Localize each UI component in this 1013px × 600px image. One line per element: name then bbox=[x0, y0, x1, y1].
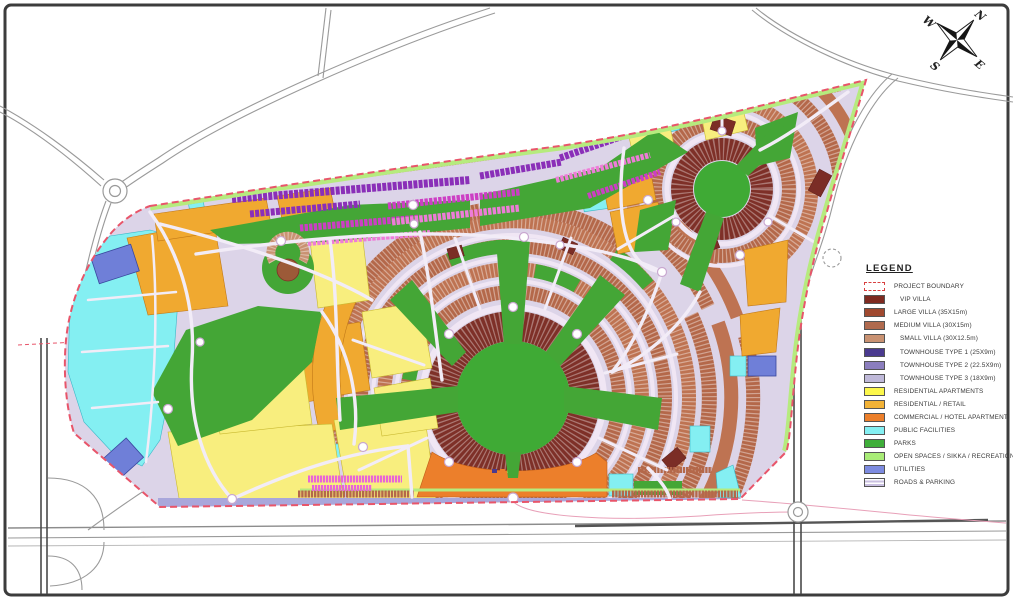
legend-swatch bbox=[864, 308, 885, 317]
legend-label: ROADS & PARKING bbox=[894, 479, 955, 486]
masterplan-map: N E S W bbox=[0, 0, 1013, 600]
legend-label: SMALL VILLA (30X12.5m) bbox=[900, 335, 978, 342]
legend-item: TOWNHOUSE TYPE 3 (18X9m) bbox=[864, 372, 1012, 385]
legend-swatch bbox=[864, 348, 885, 357]
legend-panel: LEGEND PROJECT BOUNDARYVIP VILLALARGE VI… bbox=[864, 263, 1012, 490]
legend-item: ROADS & PARKING bbox=[864, 476, 1012, 489]
legend-items: PROJECT BOUNDARYVIP VILLALARGE VILLA (35… bbox=[864, 280, 1012, 490]
legend-swatch bbox=[864, 334, 885, 343]
legend-label: TOWNHOUSE TYPE 2 (22.5X9m) bbox=[900, 362, 1001, 369]
legend-label: LARGE VILLA (35X15m) bbox=[894, 309, 967, 316]
legend-label: UTILITIES bbox=[894, 466, 925, 473]
legend-swatch bbox=[864, 295, 885, 304]
legend-label: TOWNHOUSE TYPE 1 (25X9m) bbox=[900, 349, 996, 356]
legend-swatch bbox=[864, 321, 885, 330]
legend-item: TOWNHOUSE TYPE 2 (22.5X9m) bbox=[864, 359, 1012, 372]
legend-item: VIP VILLA bbox=[864, 293, 1012, 306]
legend-label: COMMERCIAL / HOTEL APARTMENT bbox=[894, 414, 1008, 421]
legend-item: SMALL VILLA (30X12.5m) bbox=[864, 332, 1012, 345]
masterplan-canvas: N E S W LEGEND PROJECT BOUNDARYVIP VILLA… bbox=[0, 0, 1013, 600]
legend-swatch bbox=[864, 400, 885, 409]
legend-item: RESIDENTIAL / RETAIL bbox=[864, 398, 1012, 411]
legend-swatch bbox=[864, 426, 885, 435]
legend-item: OPEN SPACES / SIKKA / RECREATION bbox=[864, 450, 1012, 463]
legend-title: LEGEND bbox=[866, 263, 1012, 274]
legend-label: PROJECT BOUNDARY bbox=[894, 283, 964, 290]
legend-item: RESIDENTIAL APARTMENTS bbox=[864, 385, 1012, 398]
legend-item: TOWNHOUSE TYPE 1 (25X9m) bbox=[864, 345, 1012, 358]
legend-label: OPEN SPACES / SIKKA / RECREATION bbox=[894, 453, 1013, 460]
legend-item: LARGE VILLA (35X15m) bbox=[864, 306, 1012, 319]
legend-swatch bbox=[864, 282, 885, 291]
legend-swatch bbox=[864, 452, 885, 461]
legend-label: MEDIUM VILLA (30X15m) bbox=[894, 322, 972, 329]
legend-swatch bbox=[864, 478, 885, 487]
legend-label: PARKS bbox=[894, 440, 916, 447]
legend-label: RESIDENTIAL / RETAIL bbox=[894, 401, 966, 408]
legend-swatch bbox=[864, 465, 885, 474]
legend-swatch bbox=[864, 374, 885, 383]
legend-item: PUBLIC FACILITIES bbox=[864, 424, 1012, 437]
legend-label: VIP VILLA bbox=[900, 296, 931, 303]
legend-item: MEDIUM VILLA (30X15m) bbox=[864, 319, 1012, 332]
legend-swatch bbox=[864, 413, 885, 422]
legend-label: TOWNHOUSE TYPE 3 (18X9m) bbox=[900, 375, 996, 382]
legend-item: UTILITIES bbox=[864, 463, 1012, 476]
legend-item: PROJECT BOUNDARY bbox=[864, 280, 1012, 293]
legend-swatch bbox=[864, 387, 885, 396]
legend-item: PARKS bbox=[864, 437, 1012, 450]
legend-label: RESIDENTIAL APARTMENTS bbox=[894, 388, 983, 395]
legend-label: PUBLIC FACILITIES bbox=[894, 427, 955, 434]
legend-swatch bbox=[864, 439, 885, 448]
legend-item: COMMERCIAL / HOTEL APARTMENT bbox=[864, 411, 1012, 424]
legend-swatch bbox=[864, 361, 885, 370]
